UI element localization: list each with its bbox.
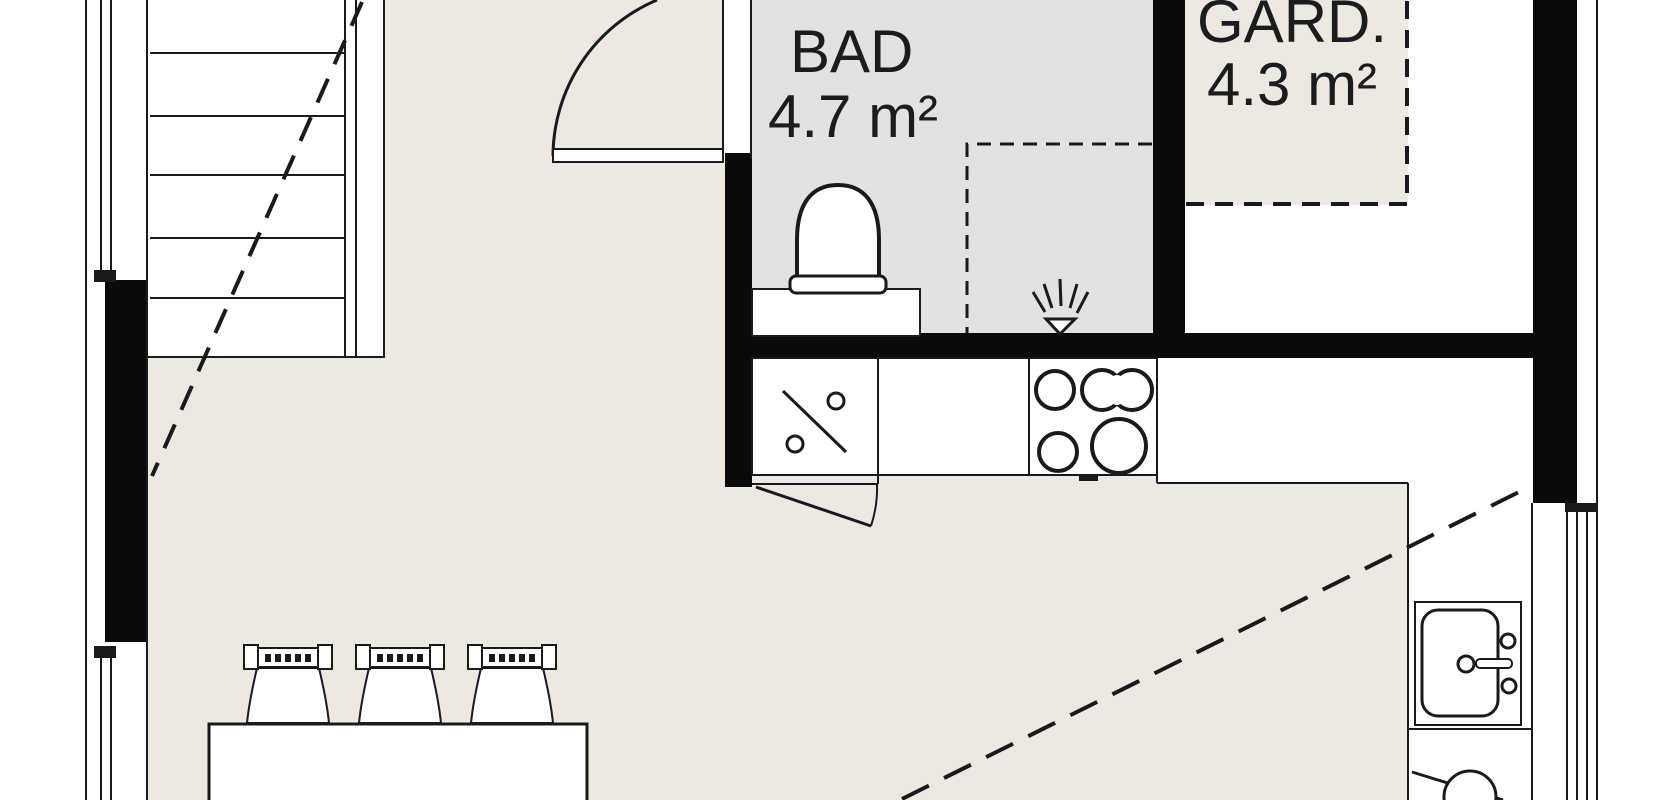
toilet-bowl <box>797 185 879 278</box>
bath-kitchen-wall <box>725 153 752 487</box>
kitchen-sink <box>1415 602 1521 725</box>
kitchen-strip-floor <box>1157 358 1533 483</box>
hall-floor-upper <box>1408 0 1533 205</box>
burner <box>1039 433 1077 471</box>
east-wall <box>1533 0 1577 503</box>
window-frame <box>94 270 116 282</box>
gard-area: 4.3 m² <box>1207 55 1377 115</box>
faucet-knob <box>1501 634 1515 648</box>
toilet-cistern <box>752 289 920 336</box>
window-frame <box>94 646 116 658</box>
dining-chair <box>468 645 556 723</box>
dining-chair <box>244 645 332 723</box>
faucet-knob <box>1502 679 1516 693</box>
kitchen-floor-south <box>725 475 1408 800</box>
faucet-lever <box>1476 659 1512 668</box>
faucet <box>1458 656 1474 672</box>
toilet-base <box>790 276 886 293</box>
burner <box>1036 371 1074 409</box>
dining-table <box>209 724 587 800</box>
west-wall <box>105 280 147 642</box>
entry-door-leaf <box>553 149 723 162</box>
burner <box>1092 419 1146 473</box>
floor-plan: BAD 4.7 m² GARD. 4.3 m² <box>0 0 1670 800</box>
cooktop-handle <box>1079 474 1098 481</box>
dining-set <box>209 645 587 800</box>
hall-floor <box>1185 205 1533 333</box>
bathroom-area: 4.7 m² <box>768 87 938 147</box>
bathroom-label: BAD <box>790 22 913 82</box>
bath-gard-wall <box>1153 0 1185 358</box>
dining-chair <box>356 645 444 723</box>
window-frame <box>1565 503 1598 512</box>
living-floor <box>385 0 725 800</box>
gard-label: GARD. <box>1197 0 1387 52</box>
door-threshold <box>723 0 752 165</box>
